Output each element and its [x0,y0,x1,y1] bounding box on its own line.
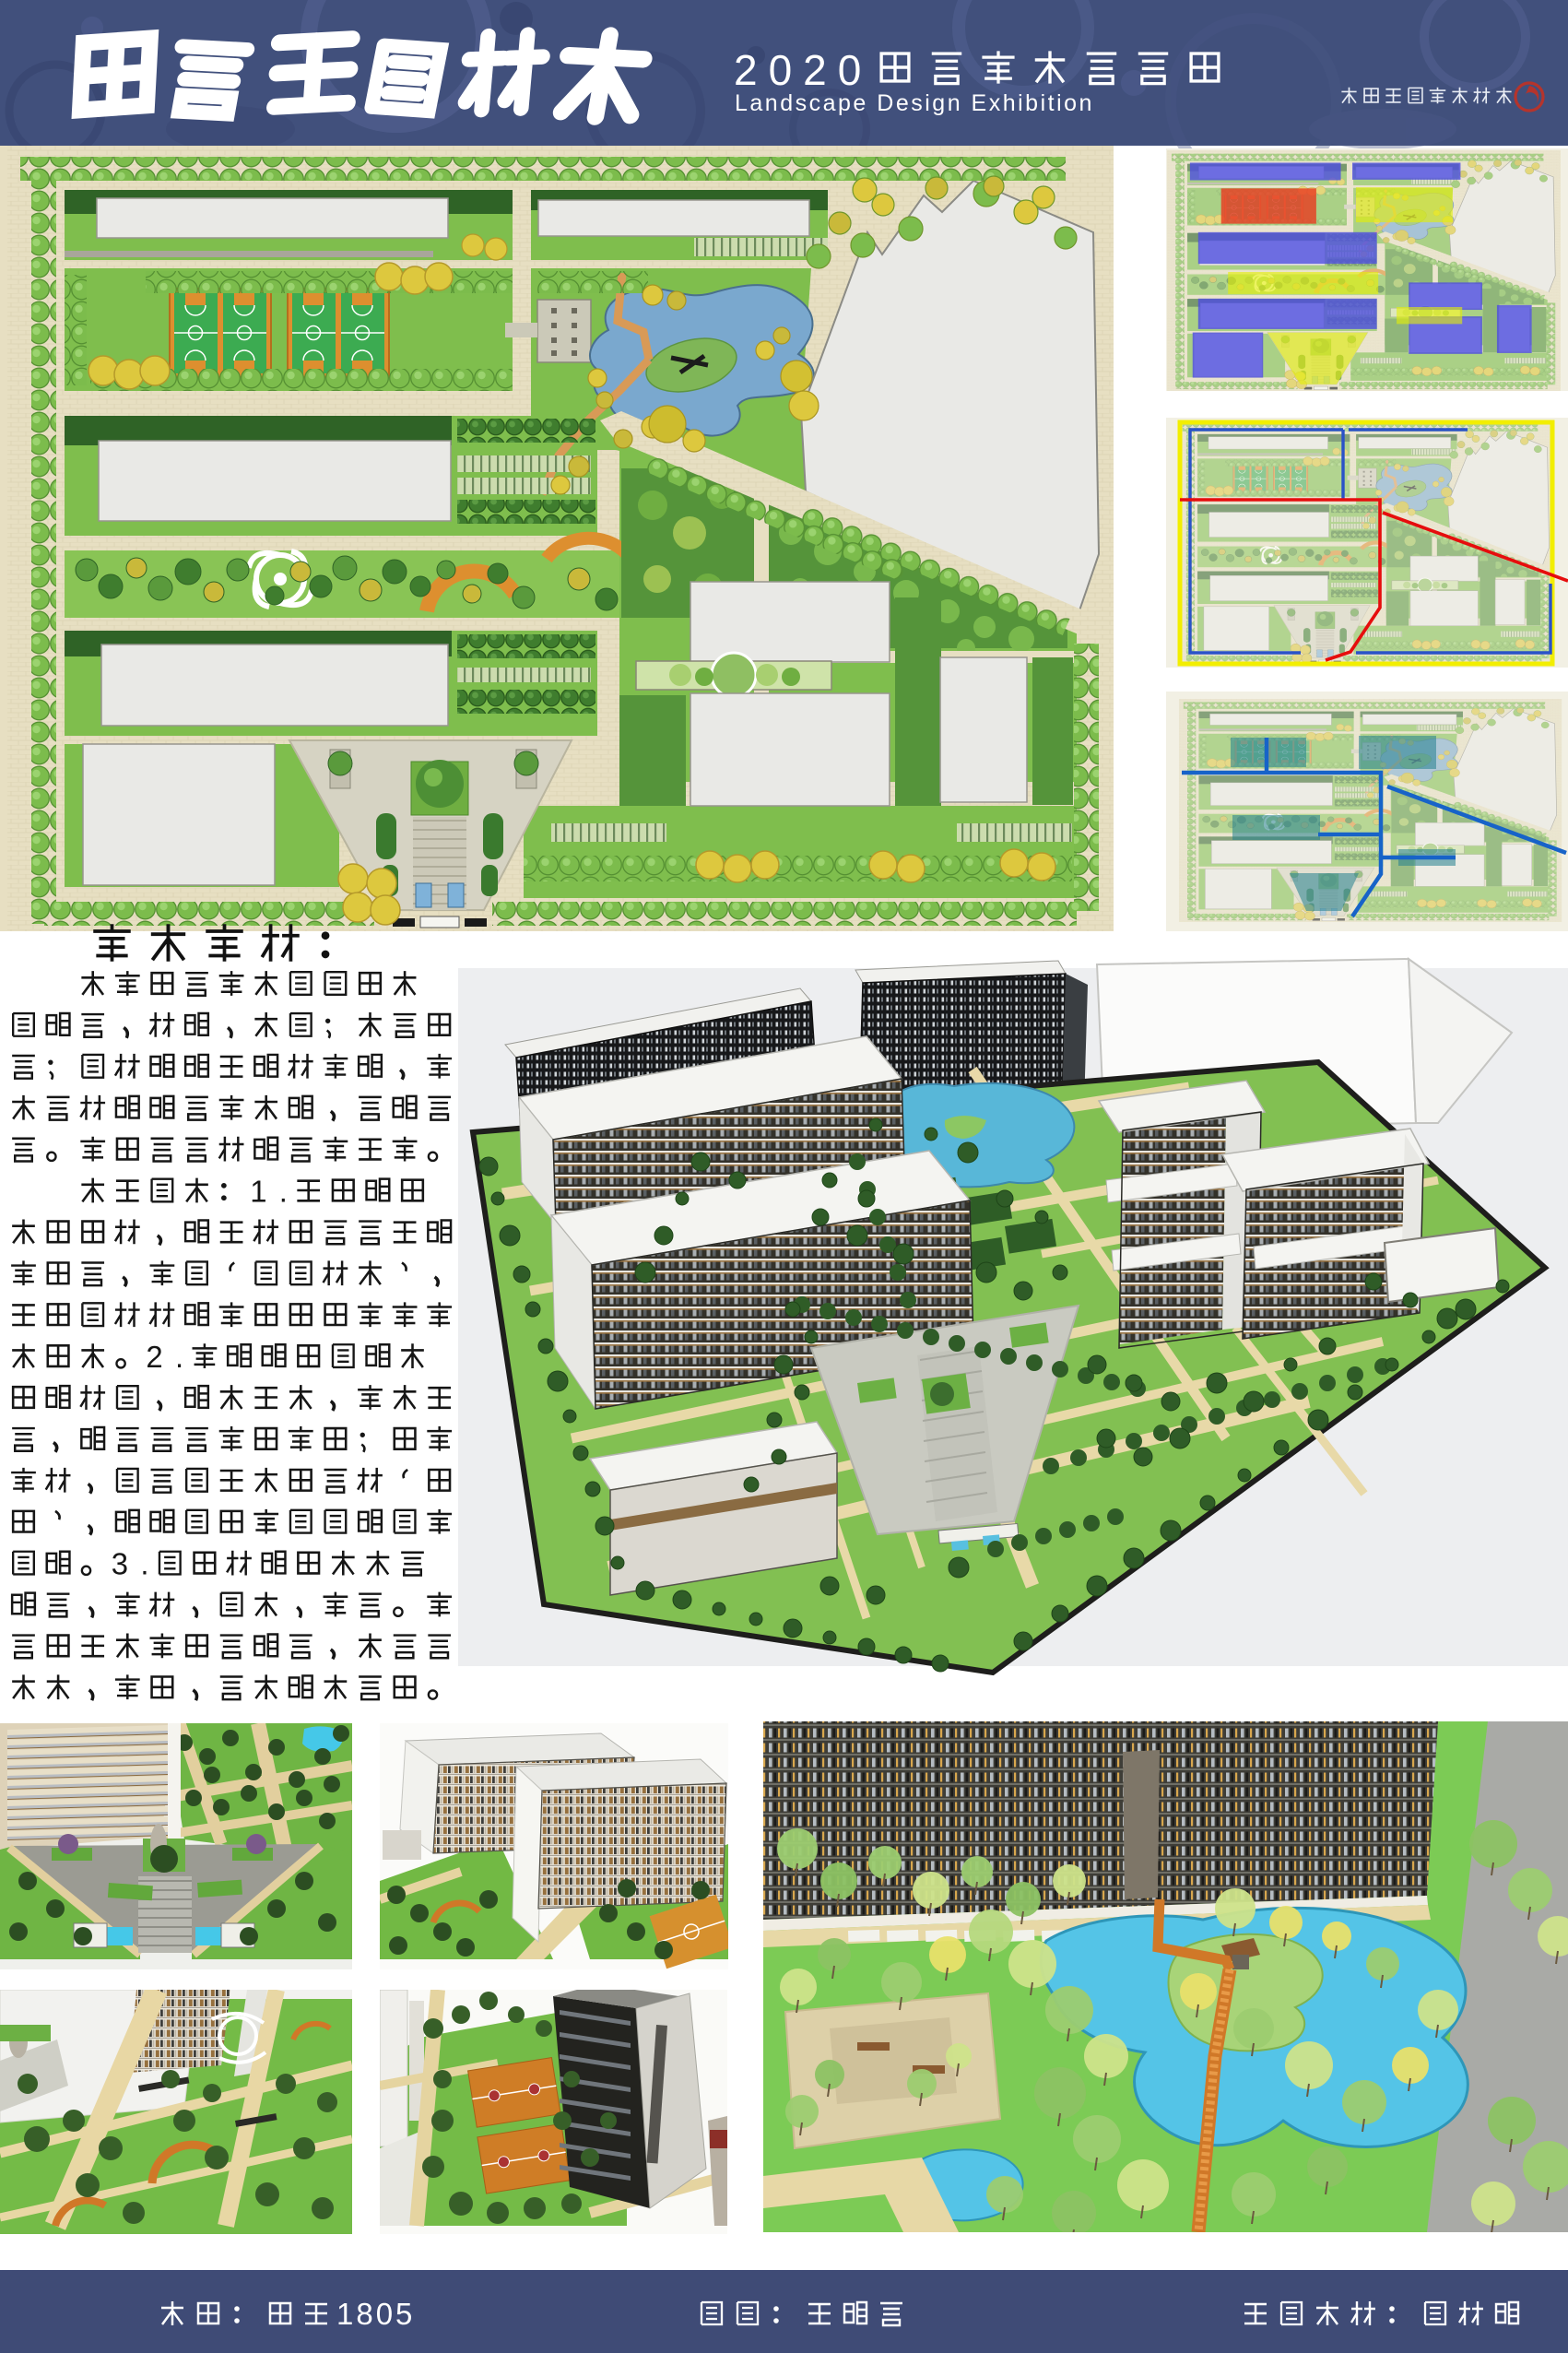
svg-text:1.: 1. [250,1175,300,1209]
svg-text:2.: 2. [146,1340,195,1374]
svg-text:3.: 3. [112,1547,161,1581]
svg-text:Landscape Design Exhibition: Landscape Design Exhibition [735,90,1094,116]
svg-text:2020: 2020 [734,46,872,94]
svg-text:1805: 1805 [336,2297,415,2331]
